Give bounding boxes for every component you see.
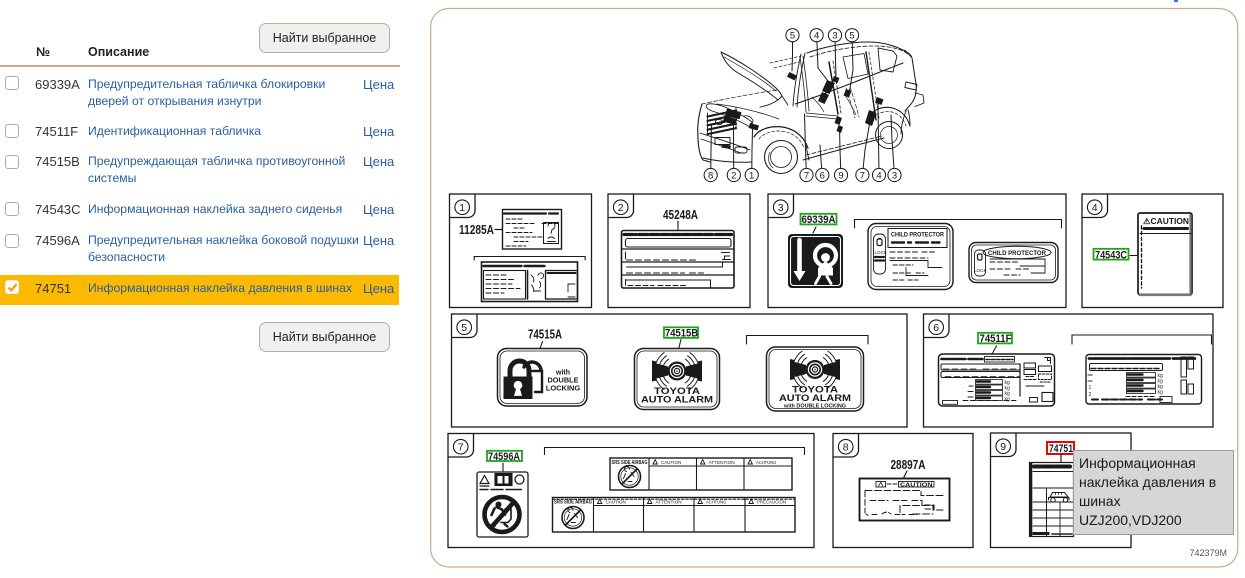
svg-text:5: 5 (790, 31, 795, 42)
svg-text:⚠CAUTION: ⚠CAUTION (1143, 217, 1189, 226)
svg-text:1: 1 (749, 170, 754, 181)
svg-text:AUTO ALARM: AUTO ALARM (779, 393, 851, 404)
svg-text:74543C: 74543C (1095, 249, 1127, 261)
svg-text:with DOUBLE LOCKING: with DOUBLE LOCKING (783, 404, 846, 410)
svg-text:SRS SIDE AIRBAG: SRS SIDE AIRBAG (554, 500, 592, 506)
svg-text:1: 1 (1089, 385, 1092, 391)
svg-text:LOCKING: LOCKING (546, 384, 581, 393)
svg-text:742379M: 742379M (1189, 548, 1227, 558)
svg-text:6: 6 (933, 322, 939, 334)
svg-text:8: 8 (708, 170, 713, 181)
svg-text:1: 1 (459, 202, 465, 214)
svg-text:ATTENTION: ATTENTION (656, 500, 682, 505)
svg-text:74511F: 74511F (980, 333, 1012, 345)
svg-text:74515A: 74515A (528, 328, 562, 342)
svg-text:AUTO ALARM: AUTO ALARM (641, 395, 713, 406)
svg-text:69339A: 69339A (802, 214, 836, 226)
svg-text:ACHTUNG: ACHTUNG (756, 460, 777, 465)
svg-text:28897A: 28897A (891, 458, 926, 472)
svg-text:ACHTUNG: ACHTUNG (706, 500, 727, 505)
svg-text:CHILD PROTECTOR: CHILD PROTECTOR (988, 251, 1047, 257)
svg-text:kg: kg (1158, 389, 1164, 395)
svg-text:CAUTION: CAUTION (661, 460, 681, 465)
svg-text:3: 3 (832, 31, 837, 42)
svg-text:2: 2 (731, 170, 736, 181)
svg-text:45248A: 45248A (663, 208, 698, 222)
svg-text:2: 2 (1089, 392, 1092, 398)
svg-text:5: 5 (849, 31, 854, 42)
svg-text:7: 7 (804, 170, 809, 181)
svg-text:9: 9 (838, 170, 843, 181)
svg-text:4: 4 (1092, 202, 1098, 214)
svg-text:CHILD PROTECTOR: CHILD PROTECTOR (891, 232, 944, 239)
svg-text:ATTENTION: ATTENTION (709, 460, 735, 465)
svg-text:LOCK: LOCK (875, 250, 888, 255)
svg-text:2: 2 (618, 202, 624, 214)
svg-text:kg: kg (1005, 396, 1011, 402)
svg-text:9: 9 (1000, 441, 1006, 453)
svg-text:6: 6 (820, 170, 825, 181)
svg-text:5: 5 (461, 322, 467, 334)
svg-text:PRECAUCION: PRECAUCION (757, 500, 786, 505)
svg-text:3: 3 (778, 202, 784, 214)
svg-text:74515B: 74515B (665, 328, 698, 340)
svg-text:74751: 74751 (1049, 443, 1073, 455)
svg-text:CAUTION: CAUTION (900, 482, 933, 488)
svg-text:11285A: 11285A (459, 223, 494, 237)
svg-text:4: 4 (814, 31, 819, 42)
svg-text:LOCK: LOCK (974, 268, 987, 273)
svg-text:4: 4 (876, 170, 881, 181)
svg-text:74596A: 74596A (488, 451, 520, 463)
svg-text:CAUTION: CAUTION (606, 500, 626, 505)
svg-text:3: 3 (892, 170, 897, 181)
svg-text:7: 7 (458, 442, 464, 454)
svg-text:8: 8 (843, 442, 849, 454)
svg-text:7: 7 (860, 170, 865, 181)
